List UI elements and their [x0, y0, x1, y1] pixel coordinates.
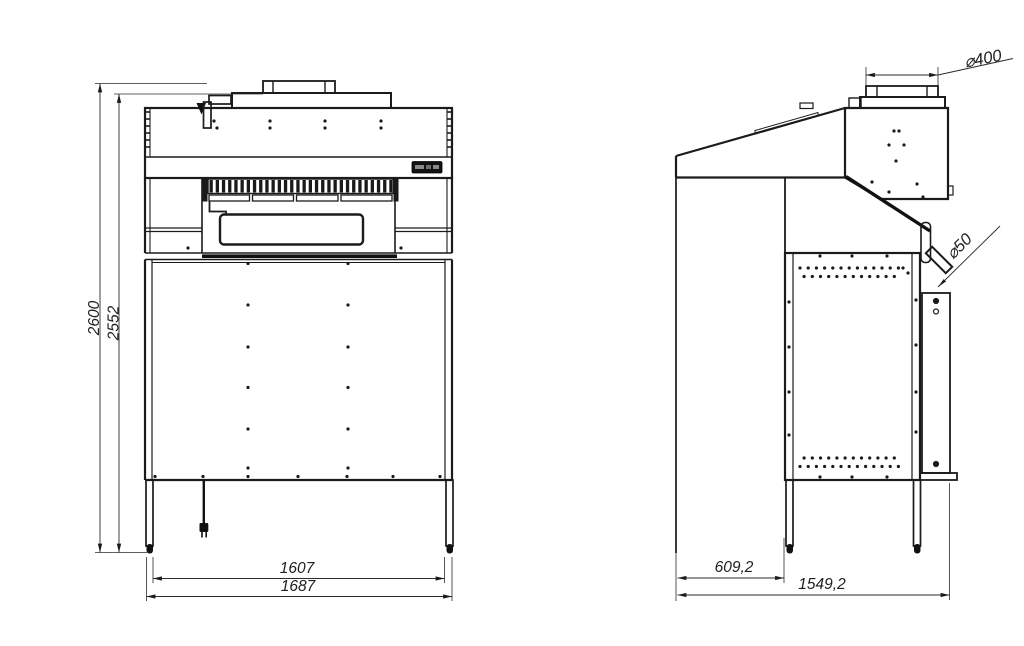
conduit-line	[210, 202, 227, 215]
air-grille	[203, 179, 399, 202]
sash-stop	[800, 103, 813, 109]
panel-screw-dots	[153, 262, 441, 478]
dim-overall-width: 1687	[281, 578, 317, 595]
drain-chute	[846, 177, 952, 274]
technical-drawing: 2600 2552 1607 1687	[0, 0, 1024, 646]
dim-overall-depth: 1549,2	[798, 576, 846, 593]
dim-inner-leg-width: 1607	[280, 560, 316, 577]
brand-nameplate	[412, 162, 442, 174]
hood	[676, 103, 846, 178]
front-dimensions: 2600 2552 1607 1687	[86, 84, 452, 602]
side-view: ⌀400 ⌀50 609,2 1549,2	[676, 47, 1013, 601]
work-opening	[145, 178, 452, 253]
duct-collar-side	[860, 86, 945, 108]
sash-window	[220, 215, 363, 245]
leg-foot	[147, 544, 154, 554]
roof-pipe-valve	[197, 96, 232, 129]
lower-cabinet-front	[145, 260, 452, 481]
dim-cabinet-height: 2552	[106, 305, 123, 341]
mid-screw-dots	[186, 246, 402, 249]
leg-foot	[447, 544, 454, 554]
dim-overall-height: 2600	[86, 300, 103, 336]
rear-rail	[920, 293, 957, 480]
duct-collar-front	[232, 81, 391, 108]
perforation-dots	[787, 254, 917, 478]
dim-front-depth: 609,2	[715, 559, 754, 576]
rail-dots	[933, 298, 939, 467]
lower-cabinet-side	[785, 253, 920, 480]
power-plug	[200, 480, 209, 538]
front-view: 2600 2552 1607 1687	[86, 81, 453, 601]
leg-foot	[787, 544, 794, 554]
front-legs	[146, 480, 453, 554]
dim-drain-diameter: ⌀50	[943, 230, 976, 263]
drawing-canvas: 2600 2552 1607 1687	[0, 0, 1024, 646]
worktop	[145, 253, 452, 260]
header-panel	[145, 108, 452, 178]
side-legs	[786, 480, 921, 554]
power-plug-icon	[200, 523, 209, 532]
dim-duct-diameter: ⌀400	[963, 47, 1004, 72]
header-screw-dots	[212, 119, 382, 129]
edge-fastener-ticks	[146, 112, 452, 147]
leg-foot	[914, 544, 921, 554]
